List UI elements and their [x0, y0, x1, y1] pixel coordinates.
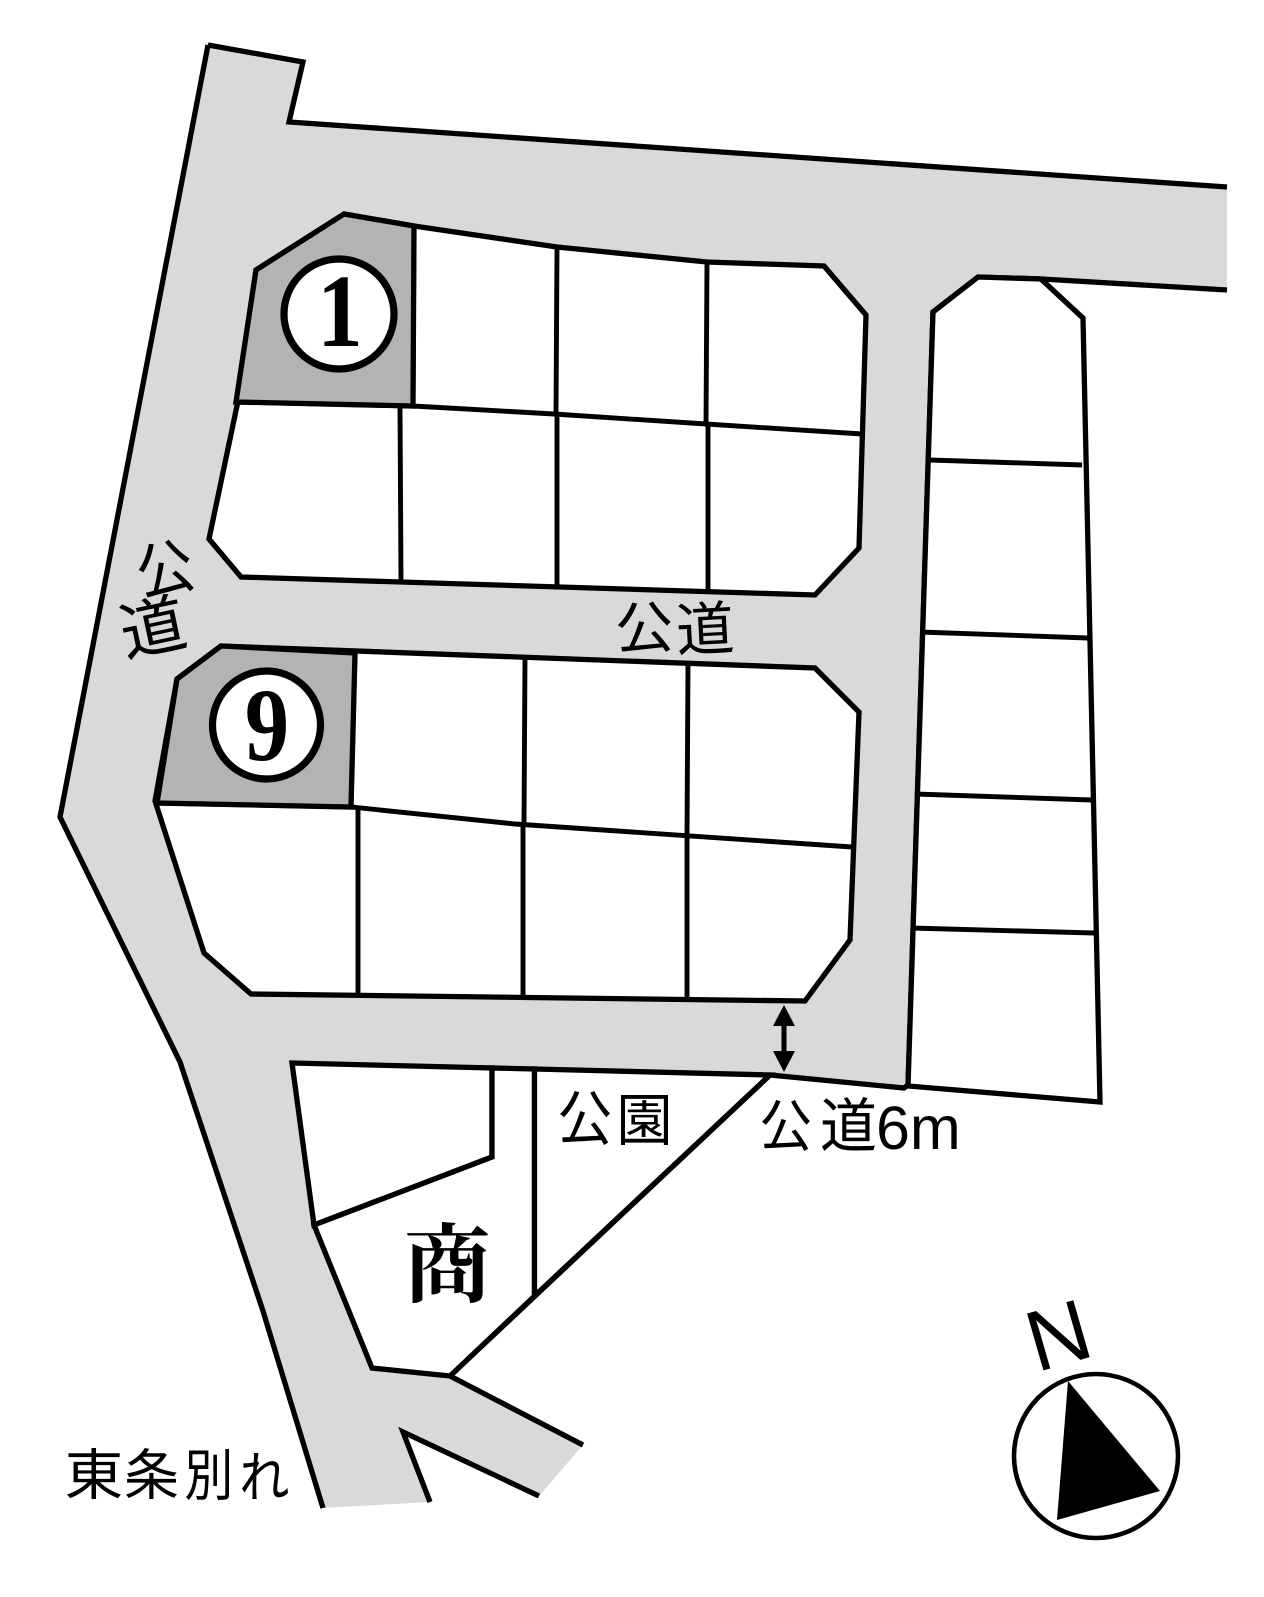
svg-text:6m: 6m: [876, 1094, 961, 1162]
svg-text:1: 1: [317, 255, 363, 370]
svg-text:9: 9: [245, 667, 289, 782]
